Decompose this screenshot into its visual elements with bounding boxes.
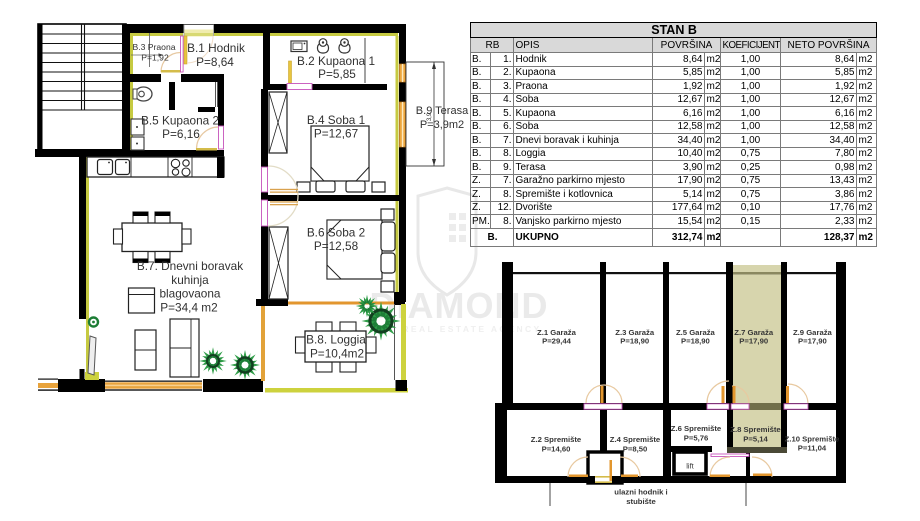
- svg-text:P=1,92: P=1,92: [141, 53, 169, 63]
- svg-text:B.6 Soba 2: B.6 Soba 2: [307, 226, 365, 240]
- svg-text:P=29,44: P=29,44: [542, 337, 572, 346]
- svg-text:Z.8 Spremište: Z.8 Spremište: [730, 425, 781, 434]
- svg-text:B.2 Kupaona 1: B.2 Kupaona 1: [297, 54, 375, 68]
- svg-text:REAL ESTATE AGENCY: REAL ESTATE AGENCY: [402, 324, 541, 334]
- svg-text:B.9 Terasa: B.9 Terasa: [416, 105, 469, 117]
- svg-text:P=5,76: P=5,76: [684, 434, 709, 443]
- svg-text:Z.10 Spremište: Z.10 Spremište: [785, 435, 840, 444]
- svg-text:Z.6 Spremište: Z.6 Spremište: [671, 424, 722, 433]
- svg-text:Z.5 Garaža: Z.5 Garaža: [676, 328, 716, 337]
- svg-text:P=8,64: P=8,64: [196, 55, 234, 69]
- svg-text:B.4 Soba 1: B.4 Soba 1: [307, 113, 365, 127]
- svg-text:B.7. Dnevni boravak: B.7. Dnevni boravak: [137, 259, 243, 273]
- svg-text:B.3 Praona: B.3 Praona: [133, 42, 176, 52]
- svg-text:P=10,4m2: P=10,4m2: [310, 347, 364, 361]
- svg-text:Z.3 Garaža: Z.3 Garaža: [615, 328, 655, 337]
- svg-text:P=17,90: P=17,90: [798, 337, 827, 346]
- svg-text:P=14,60: P=14,60: [542, 445, 571, 454]
- svg-text:B.5 Kupaona 2: B.5 Kupaona 2: [141, 114, 219, 128]
- svg-text:lift: lift: [686, 462, 694, 471]
- svg-text:P=11,04: P=11,04: [798, 444, 827, 453]
- svg-text:Z.4 Spremište: Z.4 Spremište: [610, 435, 661, 444]
- svg-text:Z.9 Garaža: Z.9 Garaža: [793, 328, 833, 337]
- svg-text:P=34,4 m2: P=34,4 m2: [160, 301, 217, 315]
- svg-text:P=12,67: P=12,67: [314, 127, 358, 141]
- svg-text:blagovaona: blagovaona: [159, 287, 220, 301]
- svg-text:Z.2 Spremište: Z.2 Spremište: [531, 435, 582, 444]
- svg-text:P=5,85: P=5,85: [318, 67, 356, 81]
- svg-text:P=12,58: P=12,58: [314, 239, 359, 253]
- svg-text:B.1 Hodnik: B.1 Hodnik: [187, 41, 245, 55]
- svg-text:ulazni hodnik i: ulazni hodnik i: [614, 488, 667, 497]
- svg-text:P=18,90: P=18,90: [681, 337, 710, 346]
- svg-text:P=8,50: P=8,50: [623, 445, 648, 454]
- svg-text:P=5,14: P=5,14: [743, 435, 768, 444]
- svg-text:P=18,90: P=18,90: [620, 337, 649, 346]
- svg-text:P=6,16: P=6,16: [162, 127, 200, 141]
- svg-text:P=17,90: P=17,90: [739, 337, 768, 346]
- svg-text:3,9: 3,9: [427, 112, 433, 121]
- svg-text:B.8. Loggia: B.8. Loggia: [306, 333, 366, 347]
- svg-text:Z.7 Garaža: Z.7 Garaža: [734, 328, 774, 337]
- svg-text:Z.1 Garaža: Z.1 Garaža: [537, 328, 577, 337]
- svg-text:kuhinja: kuhinja: [171, 273, 209, 287]
- svg-text:stubište: stubište: [626, 497, 656, 506]
